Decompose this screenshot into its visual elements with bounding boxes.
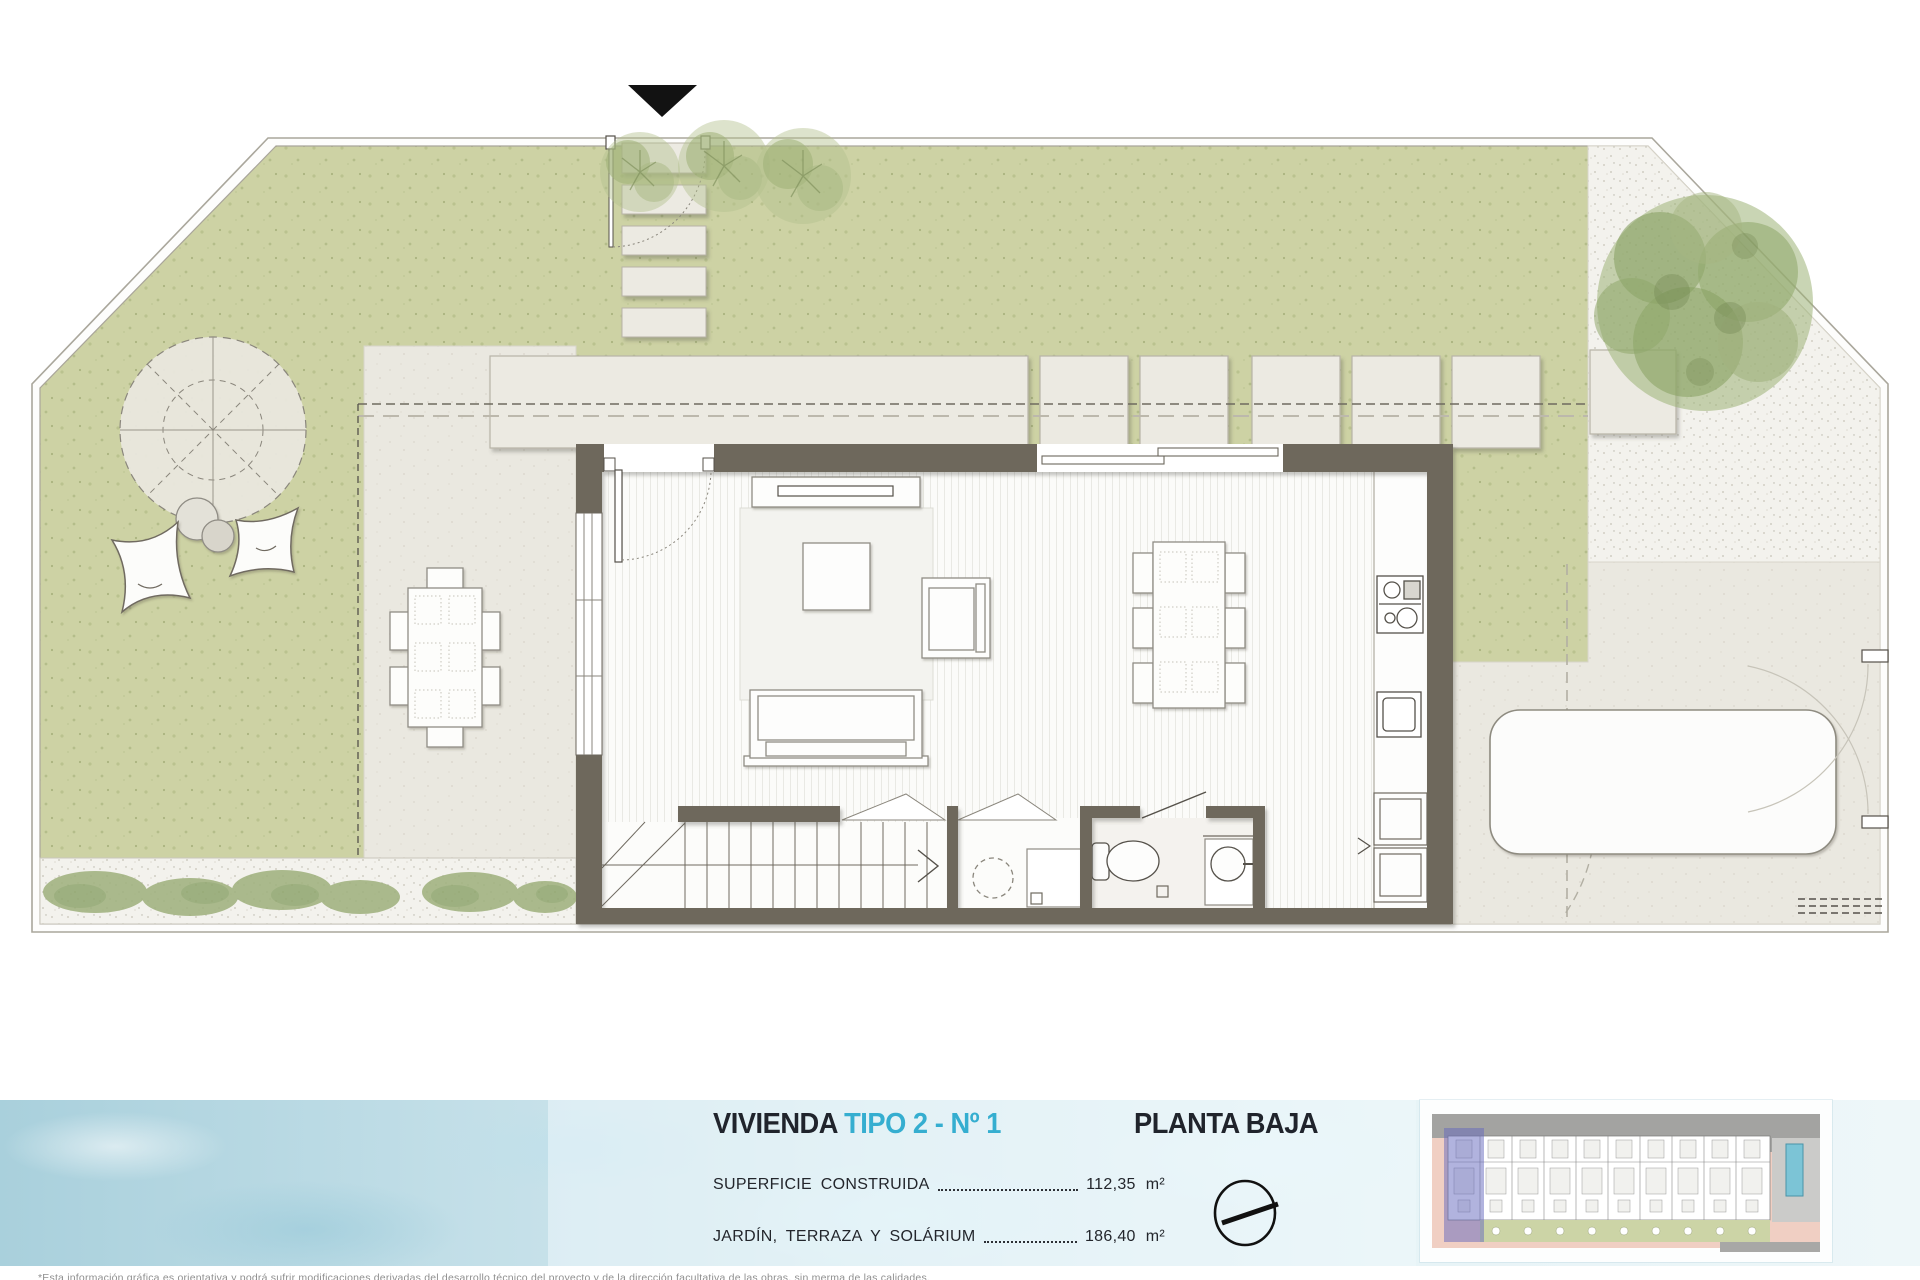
hall-deck (1262, 806, 1374, 908)
area-label: JARDÍN, TERRAZA Y SOLÁRIUM (713, 1228, 976, 1246)
area-value: 112,35 (1086, 1176, 1136, 1194)
project-label: VIVIENDA (713, 1108, 837, 1140)
washbasin (1211, 847, 1245, 881)
area-unit: m² (1146, 1228, 1165, 1246)
site-thumbnail (1420, 1100, 1832, 1262)
area-row-garden: JARDÍN, TERRAZA Y SOLÁRIUM 186,40 m² (713, 1228, 1165, 1246)
sliding-door (1037, 444, 1283, 472)
car (1490, 710, 1836, 854)
sheet-title: VIVIENDA TIPO 2 - Nº 1 (713, 1108, 1001, 1141)
unit-label: TIPO 2 - Nº 1 (844, 1108, 1001, 1140)
coffee-table (803, 543, 870, 610)
sofa (744, 690, 928, 766)
left-window (576, 513, 602, 755)
area-unit: m² (1146, 1176, 1165, 1194)
highlighted-unit (1444, 1128, 1484, 1242)
house (576, 444, 1453, 924)
armchair (922, 578, 990, 658)
disclaimer-text: *Esta información gráfica es orientativa… (38, 1272, 1598, 1280)
north-compass-icon (1212, 1178, 1280, 1248)
entry-arrow-icon (628, 85, 697, 117)
area-row-built: SUPERFICIE CONSTRUIDA 112,35 m² (713, 1176, 1165, 1194)
paver-slabs (490, 350, 1676, 448)
dining-table-set (1133, 542, 1245, 708)
cooktop (1377, 576, 1423, 633)
toilet (1092, 841, 1159, 881)
dot-leader (938, 1189, 1079, 1191)
kitchen-sink (1377, 692, 1421, 737)
area-value: 186,40 (1085, 1228, 1136, 1246)
floor-label: PLANTA BAJA (1134, 1108, 1318, 1141)
tv-console (752, 477, 920, 507)
floor-plan-sheet: VIVIENDA TIPO 2 - Nº 1 PLANTA BAJA SUPER… (0, 0, 1920, 1280)
dot-leader (984, 1241, 1077, 1243)
area-label: SUPERFICIE CONSTRUIDA (713, 1176, 930, 1194)
site-plan (0, 0, 1920, 1096)
tree-small-3 (755, 128, 851, 224)
pergola (120, 337, 306, 523)
tree-small-1 (600, 132, 680, 212)
